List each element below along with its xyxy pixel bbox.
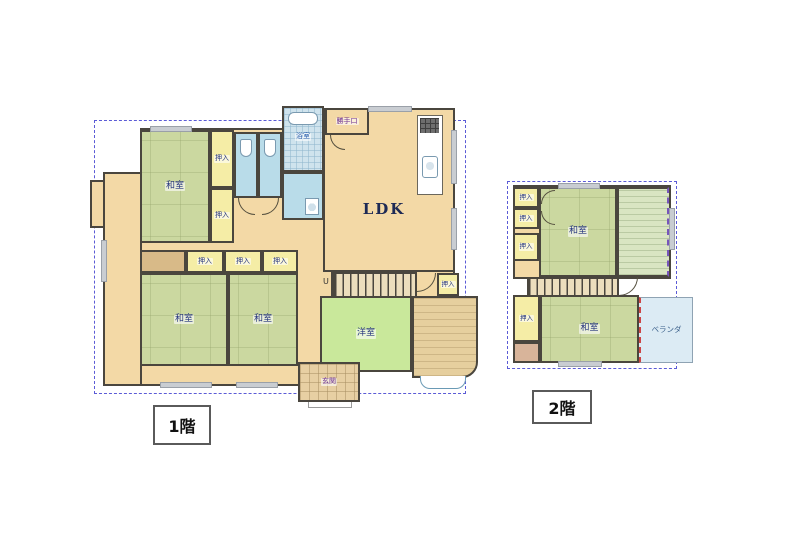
- room-label: 和室: [253, 315, 273, 325]
- closet-mid-3: 押入: [262, 250, 298, 273]
- window: [368, 106, 412, 112]
- window: [451, 208, 457, 250]
- storage-2f-corner: [513, 342, 540, 363]
- closet-label: 押入: [214, 155, 230, 163]
- window: [160, 382, 212, 388]
- bathtub-icon: [288, 112, 318, 125]
- room-label: ベランダ: [651, 326, 683, 334]
- room-entrance: 玄関: [298, 362, 360, 402]
- floor1-west-bump: [90, 180, 105, 228]
- window: [558, 183, 600, 189]
- room-label: 勝手口: [336, 118, 359, 126]
- closet-mid-1: 押入: [186, 250, 224, 273]
- room-label: LDK: [363, 200, 406, 218]
- room-label: 浴室: [295, 133, 311, 141]
- closet-label: 押入: [519, 315, 534, 322]
- floor2-label-box: 2階: [532, 390, 592, 424]
- room-washitsu-2f-south: 和室: [540, 295, 639, 363]
- closet-north-upper: 押入: [210, 130, 234, 188]
- window: [101, 240, 107, 282]
- closet-label: 押入: [197, 258, 213, 266]
- toilet-icon: [240, 139, 252, 157]
- veranda: ベランダ: [639, 297, 693, 363]
- roof-area: [617, 187, 669, 277]
- stairs-floor2: [527, 277, 619, 297]
- closet-label: 押入: [214, 212, 230, 220]
- window: [236, 382, 278, 388]
- closet-north-lower: 押入: [210, 188, 234, 243]
- closet-label: 押入: [272, 258, 288, 266]
- room-washitsu-sw-right: 和室: [228, 273, 298, 366]
- window: [451, 130, 457, 184]
- room-label: 玄関: [321, 378, 337, 386]
- room-label: 和室: [579, 324, 599, 334]
- washing-machine-icon: [305, 198, 319, 215]
- room-washroom: [282, 172, 324, 220]
- room-label: 洋室: [356, 329, 376, 339]
- floor2-label: 2階: [548, 395, 575, 419]
- room-washitsu-sw-left: 和室: [140, 273, 228, 366]
- room-wc-left: [234, 132, 258, 198]
- room-washitsu-nw: 和室: [140, 130, 210, 243]
- closet-label: 押入: [519, 194, 534, 201]
- room-bath: 浴室: [282, 106, 324, 172]
- tokonoma-alcove: [140, 250, 186, 273]
- window: [558, 361, 602, 367]
- closet-label: 押入: [441, 281, 456, 288]
- stairs-up-mark: U: [323, 277, 329, 286]
- floor1-label-box: 1階: [153, 405, 211, 445]
- closet-2f-south: 押入: [513, 295, 540, 342]
- closet-2f-west-1: 押入: [513, 187, 539, 208]
- room-wc-right: [258, 132, 282, 198]
- room-label: 和室: [165, 182, 185, 192]
- floor1-label: 1階: [168, 413, 195, 437]
- closet-2f-west-3: 押入: [513, 233, 539, 261]
- floor2-plan: 押入 押入 押入 和室 押入 和室 ベランダ: [500, 178, 710, 378]
- closet-by-stairs: 押入: [437, 273, 459, 296]
- deck-bay-step: [420, 376, 466, 389]
- floor-plan-canvas: 和室 押入 押入 浴室 勝手口: [0, 0, 788, 533]
- stove-icon: [420, 118, 439, 133]
- closet-label: 押入: [519, 215, 534, 222]
- room-youshitsu: 洋室: [320, 296, 412, 372]
- closet-2f-west-2: 押入: [513, 208, 539, 229]
- room-label: 和室: [174, 315, 194, 325]
- closet-mid-2: 押入: [224, 250, 262, 273]
- closet-label: 押入: [235, 258, 251, 266]
- floor1-plan: 和室 押入 押入 浴室 勝手口: [86, 104, 486, 416]
- wood-deck: [412, 296, 478, 378]
- window: [669, 208, 675, 250]
- kitchen-sink-icon: [422, 156, 438, 178]
- toilet-icon: [264, 139, 276, 157]
- floor1-west-corridor: [103, 172, 142, 386]
- closet-label: 押入: [519, 243, 534, 250]
- window: [150, 126, 192, 132]
- room-label: 和室: [568, 227, 588, 237]
- stairs-floor1: [333, 272, 417, 298]
- entrance-step: [308, 402, 352, 408]
